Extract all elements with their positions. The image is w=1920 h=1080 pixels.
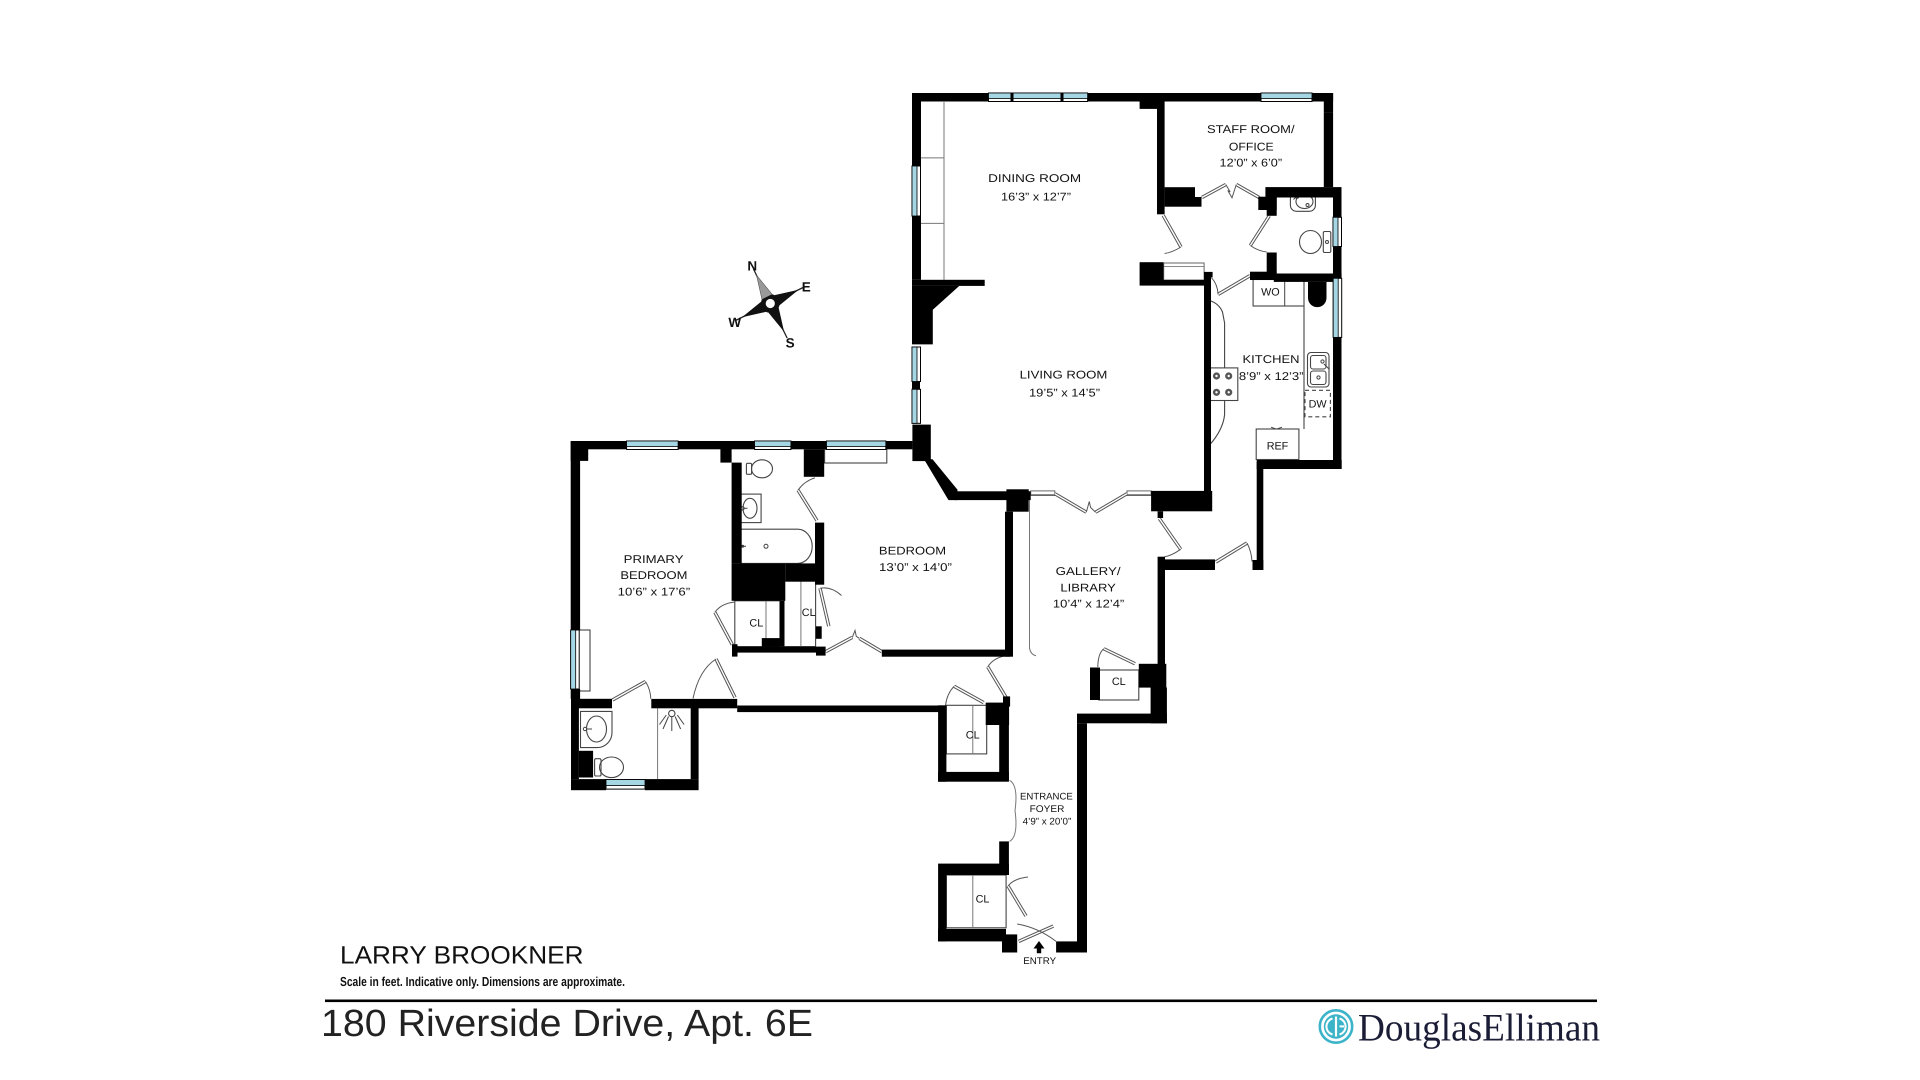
- svg-text:16’3” x 12’7”: 16’3” x 12’7”: [1001, 192, 1071, 204]
- svg-text:DINING ROOM: DINING ROOM: [988, 173, 1081, 185]
- svg-text:BEDROOM: BEDROOM: [879, 546, 946, 558]
- svg-text:KITCHEN: KITCHEN: [1243, 354, 1300, 366]
- svg-text:LIBRARY: LIBRARY: [1060, 582, 1116, 594]
- svg-text:W: W: [728, 315, 741, 330]
- svg-text:10’6” x 17’6”: 10’6” x 17’6”: [618, 587, 691, 599]
- svg-text:WO: WO: [1261, 287, 1280, 299]
- svg-text:E: E: [802, 279, 811, 294]
- svg-text:ENTRY: ENTRY: [1023, 956, 1056, 967]
- svg-text:DouglasElliman: DouglasElliman: [1358, 1006, 1600, 1049]
- svg-text:DW: DW: [1309, 399, 1328, 411]
- svg-text:PRIMARY: PRIMARY: [624, 554, 684, 566]
- svg-text:Scale in feet. Indicative only: Scale in feet. Indicative only. Dimensio…: [340, 974, 625, 989]
- svg-text:GALLERY/: GALLERY/: [1056, 566, 1122, 578]
- svg-text:8’9” x 12’3”: 8’9” x 12’3”: [1239, 371, 1304, 383]
- svg-text:CL: CL: [966, 730, 980, 742]
- svg-text:LIVING ROOM: LIVING ROOM: [1020, 370, 1108, 382]
- svg-text:180 Riverside Drive, Apt. 6E: 180 Riverside Drive, Apt. 6E: [321, 1003, 813, 1045]
- svg-text:4’9” x 20’0”: 4’9” x 20’0”: [1023, 817, 1072, 828]
- svg-text:FOYER: FOYER: [1030, 804, 1065, 815]
- svg-text:LARRY BROOKNER: LARRY BROOKNER: [340, 942, 584, 970]
- svg-text:CL: CL: [749, 617, 763, 629]
- svg-text:13’0” x 14’0”: 13’0” x 14’0”: [879, 562, 952, 574]
- svg-text:12’0” x 6’0”: 12’0” x 6’0”: [1220, 158, 1283, 170]
- svg-text:REF: REF: [1267, 440, 1289, 452]
- svg-text:CL: CL: [1112, 676, 1126, 688]
- svg-text:STAFF ROOM/: STAFF ROOM/: [1207, 124, 1295, 136]
- svg-text:S: S: [786, 335, 795, 350]
- svg-text:CL: CL: [802, 607, 816, 619]
- svg-text:19’5” x 14’5”: 19’5” x 14’5”: [1029, 388, 1100, 400]
- svg-text:CL: CL: [976, 894, 990, 906]
- svg-text:ENTRANCE: ENTRANCE: [1020, 792, 1073, 803]
- svg-text:10’4” x 12’4”: 10’4” x 12’4”: [1053, 599, 1125, 611]
- svg-text:N: N: [747, 259, 757, 274]
- svg-text:BEDROOM: BEDROOM: [620, 570, 687, 582]
- svg-text:OFFICE: OFFICE: [1229, 142, 1274, 154]
